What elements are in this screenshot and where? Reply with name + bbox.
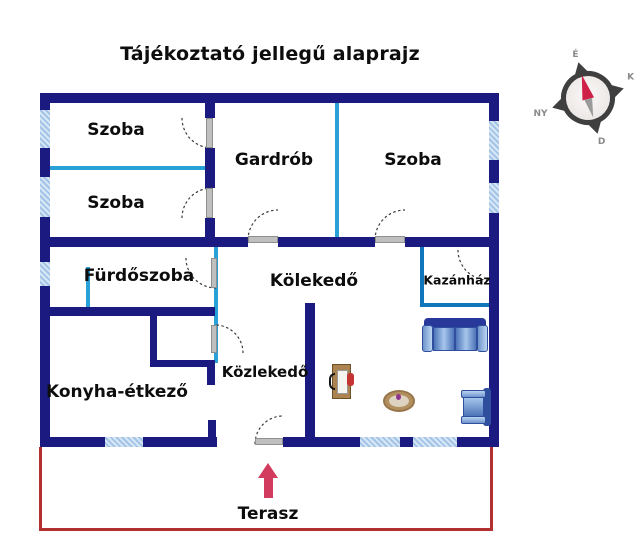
door-leaf-szoba-bottom-left [206, 188, 213, 218]
coffee-table-icon [383, 390, 415, 412]
room-label-kazanhaz: Kazánház [423, 273, 490, 288]
door-leaf-entrance [255, 438, 283, 445]
room-label-kozlekedo: Közlekedő [222, 363, 309, 381]
armchair-armrest-bottom [461, 416, 486, 424]
door-leaf-gardrob [248, 236, 278, 243]
room-label-szoba-right: Szoba [384, 150, 441, 170]
room-label-kolekedo: Kölekedő [270, 271, 358, 291]
coffee-table-decor-icon [396, 394, 401, 400]
room-label-konyha-etkezo: Konyha-étkező [46, 382, 188, 402]
room-label-gardrob: Gardrób [235, 150, 313, 170]
sofa-cushion [455, 327, 477, 351]
room-label-furdoszoba: Fürdőszoba [84, 266, 194, 286]
sofa-armrest-right [477, 325, 488, 352]
armchair-seat [463, 397, 484, 417]
sofa-icon [422, 318, 488, 352]
room-label-szoba-bottom-left: Szoba [87, 193, 144, 213]
room-label-terasz: Terasz [238, 504, 299, 524]
sofa-cushion [433, 327, 455, 351]
room-label-szoba-top-left: Szoba [87, 120, 144, 140]
door-leaf-wc [211, 325, 217, 353]
door-leaf-szoba-top-left [206, 118, 213, 148]
sofa-armrest-left [422, 325, 433, 352]
desk-chair-icon [329, 373, 335, 390]
door-leaf-bathroom [211, 258, 217, 288]
door-arc-wc [215, 325, 243, 353]
floor-plan-canvas: Tájékoztató jellegű alaprajz É K D NY [0, 0, 640, 560]
armchair-icon [461, 390, 491, 424]
desk-icon [332, 364, 351, 399]
desk-red-item-icon [347, 373, 354, 386]
door-leaf-szoba-right [375, 236, 405, 243]
